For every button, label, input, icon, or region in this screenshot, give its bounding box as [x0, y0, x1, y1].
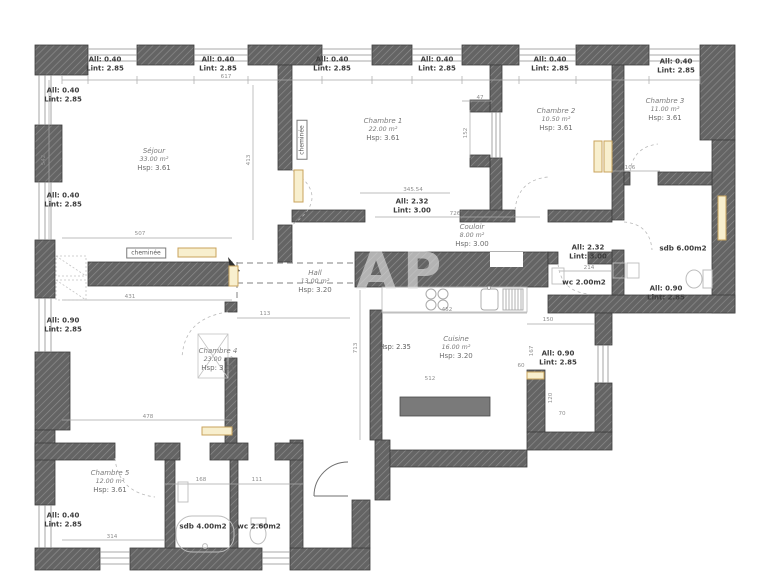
sill-height: All: 0.90	[647, 284, 685, 293]
fireplace-sketch	[56, 256, 86, 300]
opening-label: All: 0.40 Lint: 2.85	[44, 511, 82, 529]
dimension-label: 120	[548, 393, 554, 404]
dimension-label: 431	[125, 294, 136, 300]
room-label-chambre1: Chambre 1 22.00 m² Hsp: 3.61	[364, 117, 403, 143]
sill-height: All: 0.90	[539, 349, 577, 358]
lintel-height: Lint: 2.85	[44, 325, 82, 334]
room-name: Hall	[298, 269, 332, 278]
room-height: Hsp: 3.20	[298, 286, 332, 295]
dimension-label: 106	[625, 165, 636, 171]
lintel-height: Lint: 3.00	[393, 206, 431, 215]
sill-height: All: 0.40	[44, 511, 82, 520]
room-area: 10.50 m²	[537, 116, 576, 124]
dimension-label: 478	[143, 414, 154, 420]
room-label-chambre2: Chambre 2 10.50 m² Hsp: 3.61	[537, 107, 576, 133]
room-height: Hsp: 3.61	[646, 114, 685, 123]
room-area: 13.00 m²	[298, 278, 332, 286]
room-label-sdb-bottom: sdb 4.00m2	[179, 522, 226, 531]
room-label-sejour: Séjour 33.00 m² Hsp: 3.61	[137, 147, 171, 173]
opening-label: All: 2.32 Lint: 3.00	[393, 197, 431, 215]
room-area: 11.00 m²	[646, 106, 685, 114]
room-label-cuisine: Cuisine 16.00 m² Hsp: 3.20	[439, 335, 473, 361]
dimension-label: 152	[463, 128, 469, 139]
lintel-height: Lint: 2.85	[313, 64, 351, 73]
dimension-label: 413	[246, 155, 252, 166]
room-name: Séjour	[137, 147, 171, 156]
opening-label: All: 0.90 Lint: 2.85	[539, 349, 577, 367]
lintel-height: Lint: 2.85	[657, 66, 695, 75]
lintel-height: Lint: 2.85	[531, 64, 569, 73]
chimney-label-vertical: cheminée	[297, 120, 308, 160]
dimension-label: 512	[425, 376, 436, 382]
lintel-height: Lint: 2.85	[647, 293, 685, 302]
lintel-height: Lint: 2.85	[44, 200, 82, 209]
room-name: Cuisine	[439, 335, 473, 344]
lintel-height: Lint: 2.85	[418, 64, 456, 73]
lintel-height: Lint: 2.85	[44, 520, 82, 529]
room-height: Hsp: 3.61	[537, 124, 576, 133]
chimney-label-horizontal: cheminée	[126, 248, 166, 259]
room-area: 8.00 m²	[455, 232, 489, 240]
room-name: Couloir	[455, 223, 489, 232]
sill-height: All: 0.40	[44, 191, 82, 200]
room-area: 23.00 m²	[199, 356, 238, 364]
dimension-label: 542	[41, 155, 47, 166]
lintel-height: Lint: 2.85	[86, 64, 124, 73]
dimension-label: 713	[353, 343, 359, 354]
lintel-height: Lint: 3.00	[569, 252, 607, 261]
opening-label: All: 0.40 Lint: 2.85	[418, 55, 456, 73]
room-area: 22.00 m²	[364, 126, 403, 134]
ceiling-height-note: Hsp: 2.35	[379, 343, 411, 351]
sill-height: All: 0.40	[199, 55, 237, 64]
sill-height: All: 0.90	[44, 316, 82, 325]
room-height: Hsp: 3.61	[199, 364, 238, 373]
dimension-label: 726	[450, 211, 461, 217]
floor-plan-page: AP Séjour 33.00 m² Hsp: 3.61 Chambre 1 2…	[0, 0, 768, 576]
room-label-hall: Hall 13.00 m² Hsp: 3.20	[298, 269, 332, 295]
room-label-chambre3: Chambre 3 11.00 m² Hsp: 3.61	[646, 97, 685, 123]
sill-height: All: 0.40	[657, 57, 695, 66]
dimension-label: 345.54	[403, 187, 423, 193]
entrance-door	[314, 462, 348, 496]
dimension-label: 47	[476, 95, 483, 101]
opening-label: All: 0.90 Lint: 2.85	[44, 316, 82, 334]
room-height: Hsp: 3.20	[439, 352, 473, 361]
sill-height: All: 2.32	[393, 197, 431, 206]
room-label-couloir: Couloir 8.00 m² Hsp: 3.00	[455, 223, 489, 249]
room-height: Hsp: 3.61	[91, 486, 130, 495]
dimension-label: 113	[260, 311, 271, 317]
sill-height: All: 0.40	[418, 55, 456, 64]
room-label-chambre5: Chambre 5 12.00 m² Hsp: 3.61	[91, 469, 130, 495]
wall-notch	[490, 252, 523, 267]
sill-height: All: 0.40	[313, 55, 351, 64]
radiators	[178, 141, 726, 435]
dimension-label: 167	[529, 346, 535, 357]
room-label-wc-bottom: wc 2.60m2	[237, 522, 281, 531]
dimension-label: 150	[543, 317, 554, 323]
dimension-label: 314	[107, 534, 118, 540]
opening-label: All: 0.40 Lint: 2.85	[199, 55, 237, 73]
toilet-icon-sdb-right	[686, 270, 712, 288]
dimension-label: 168	[196, 477, 207, 483]
room-label-chambre4: Chambre 4 23.00 m² Hsp: 3.61	[199, 347, 238, 373]
room-name: Chambre 1	[364, 117, 403, 126]
room-name: Chambre 2	[537, 107, 576, 116]
opening-label: All: 0.40 Lint: 2.85	[531, 55, 569, 73]
lintel-height: Lint: 2.85	[539, 358, 577, 367]
room-name: Chambre 3	[646, 97, 685, 106]
room-label-sdb-right: sdb 6.00m2	[659, 244, 706, 253]
ceiling-dashed-lines	[237, 262, 355, 302]
sill-height: All: 0.40	[531, 55, 569, 64]
room-height: Hsp: 3.61	[364, 134, 403, 143]
room-area: 33.00 m²	[137, 156, 171, 164]
opening-label: All: 0.40 Lint: 2.85	[86, 55, 124, 73]
opening-label: All: 0.90 Lint: 2.85	[647, 284, 685, 302]
room-name: Chambre 4	[199, 347, 238, 356]
opening-label: All: 0.40 Lint: 2.85	[657, 57, 695, 75]
sink-icon	[481, 286, 523, 310]
opening-label: All: 0.40 Lint: 2.85	[44, 86, 82, 104]
opening-label: All: 2.32 Lint: 3.00	[569, 243, 607, 261]
dimension-label: 507	[135, 231, 146, 237]
sill-height: All: 0.40	[86, 55, 124, 64]
dimension-label: 617	[221, 74, 232, 80]
watermark-logo: AP	[356, 242, 448, 302]
dimension-label: 70	[558, 411, 565, 417]
sill-height: All: 0.40	[44, 86, 82, 95]
room-height: Hsp: 3.61	[137, 164, 171, 173]
room-label-wc-right: wc 2.00m2	[562, 278, 606, 287]
lintel-height: Lint: 2.85	[199, 64, 237, 73]
room-area: 16.00 m²	[439, 344, 473, 352]
opening-label: All: 0.40 Lint: 2.85	[313, 55, 351, 73]
room-name: Chambre 5	[91, 469, 130, 478]
dimension-label: 214	[584, 265, 595, 271]
room-area: 12.00 m²	[91, 478, 130, 486]
dimension-label: 452	[442, 307, 453, 313]
opening-label: All: 0.40 Lint: 2.85	[44, 191, 82, 209]
dimension-label: 111	[252, 477, 263, 483]
room-height: Hsp: 3.00	[455, 240, 489, 249]
lintel-height: Lint: 2.85	[44, 95, 82, 104]
dimension-label: 60	[517, 363, 524, 369]
sill-height: All: 2.32	[569, 243, 607, 252]
